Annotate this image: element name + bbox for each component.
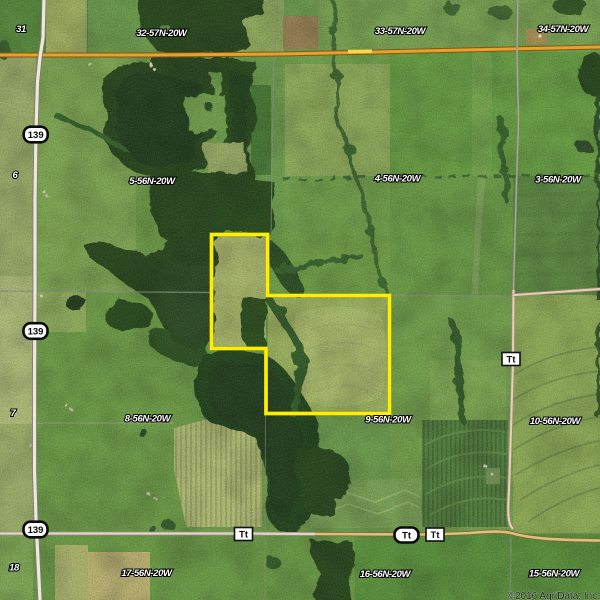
svg-text:32-57N-20W: 32-57N-20W	[136, 28, 188, 39]
svg-text:139: 139	[28, 130, 44, 141]
svg-text:Tt: Tt	[431, 530, 441, 541]
svg-text:8-56N-20W: 8-56N-20W	[125, 414, 172, 425]
svg-text:3-56N-20W: 3-56N-20W	[535, 175, 582, 186]
svg-text:Tt: Tt	[507, 355, 517, 366]
svg-text:Tt: Tt	[239, 530, 249, 541]
svg-text:4-56N-20W: 4-56N-20W	[374, 174, 422, 185]
svg-text:Tt: Tt	[402, 531, 412, 542]
svg-text:31: 31	[16, 24, 26, 35]
svg-text:16-56N-20W: 16-56N-20W	[360, 569, 412, 580]
svg-text:10-56N-20W: 10-56N-20W	[530, 416, 582, 427]
svg-text:15-56N-20W: 15-56N-20W	[529, 569, 581, 580]
svg-text:33-57N-20W: 33-57N-20W	[375, 26, 427, 37]
svg-text:17-56N-20W: 17-56N-20W	[121, 568, 173, 579]
svg-text:34-57N-20W: 34-57N-20W	[538, 24, 590, 35]
svg-text:9-56N-20W: 9-56N-20W	[365, 415, 412, 426]
svg-text:18: 18	[9, 563, 20, 574]
svg-text:©2016 AgriData, Inc.: ©2016 AgriData, Inc.	[508, 591, 600, 600]
svg-text:139: 139	[28, 327, 44, 338]
svg-text:139: 139	[28, 525, 44, 536]
svg-text:5-56N-20W: 5-56N-20W	[129, 176, 176, 187]
